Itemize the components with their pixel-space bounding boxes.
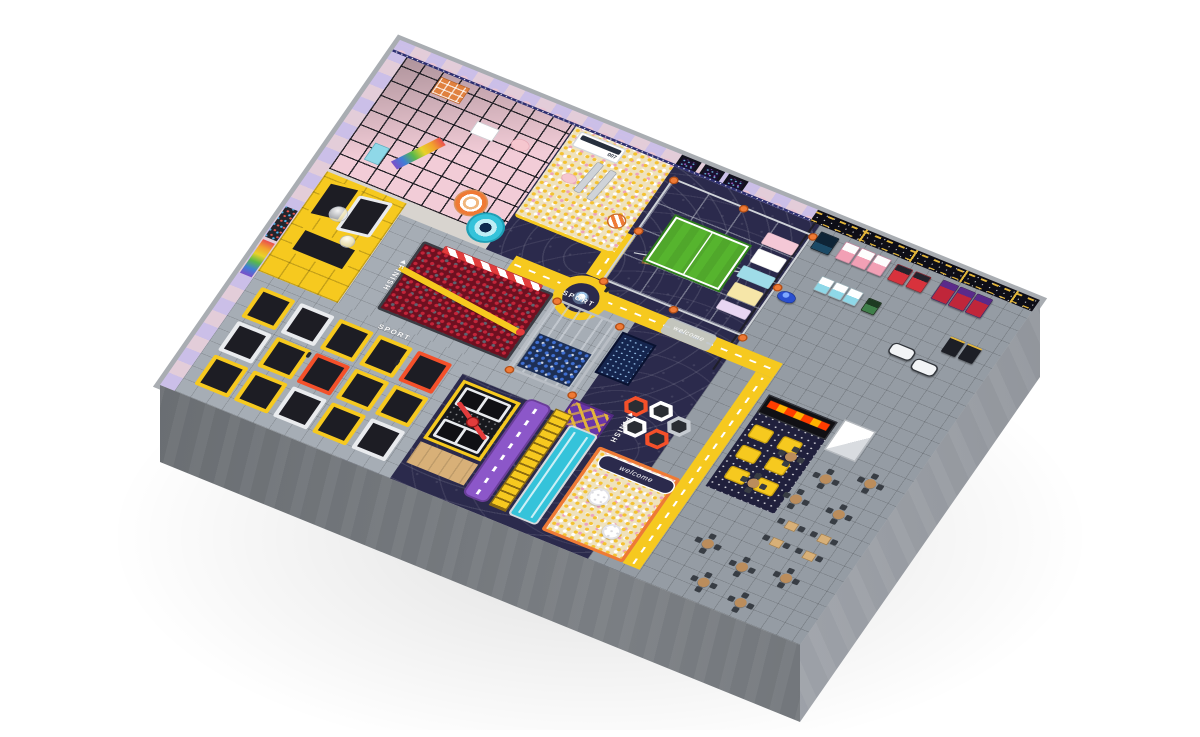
indoor-playground-3d-render: welcome 007: [0, 0, 1200, 737]
inflatable-hand: [559, 171, 579, 185]
striped-tunnel: [603, 211, 629, 231]
welcome-mat-label: welcome: [618, 465, 655, 485]
chair: [794, 547, 803, 554]
mini-soccer-field: [645, 216, 749, 290]
screen-glow: [725, 177, 744, 190]
button-decoration: [584, 485, 615, 509]
chair: [762, 534, 771, 541]
hex-trampoline-bed: [646, 431, 668, 447]
chair: [777, 517, 786, 524]
play-block: [364, 143, 390, 166]
chair: [809, 531, 818, 538]
party-table: [747, 424, 775, 445]
inflatable-hand: [508, 137, 532, 154]
party-table: [734, 444, 762, 465]
screen-glow: [702, 167, 721, 180]
screen-glow: [678, 158, 697, 171]
hex-trampoline-bed: [650, 403, 672, 419]
play-platform: [470, 121, 500, 142]
button-decoration: [599, 521, 625, 541]
plaid-play-box: [430, 77, 470, 104]
hex-trampoline-bed: [668, 418, 690, 434]
rainbow-slide: [391, 137, 446, 169]
